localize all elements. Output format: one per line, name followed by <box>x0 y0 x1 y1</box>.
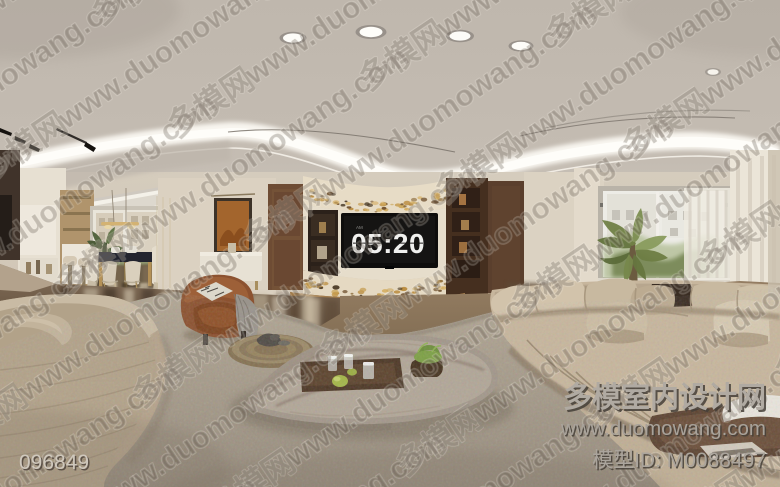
svg-text:多模室内设计网: 多模室内设计网 <box>563 380 766 414</box>
svg-text:www.duomowang.com: www.duomowang.com <box>560 417 766 440</box>
svg-text:096849: 096849 <box>19 451 89 474</box>
svg-text:模型ID: M0088497: 模型ID: M0088497 <box>592 449 766 472</box>
